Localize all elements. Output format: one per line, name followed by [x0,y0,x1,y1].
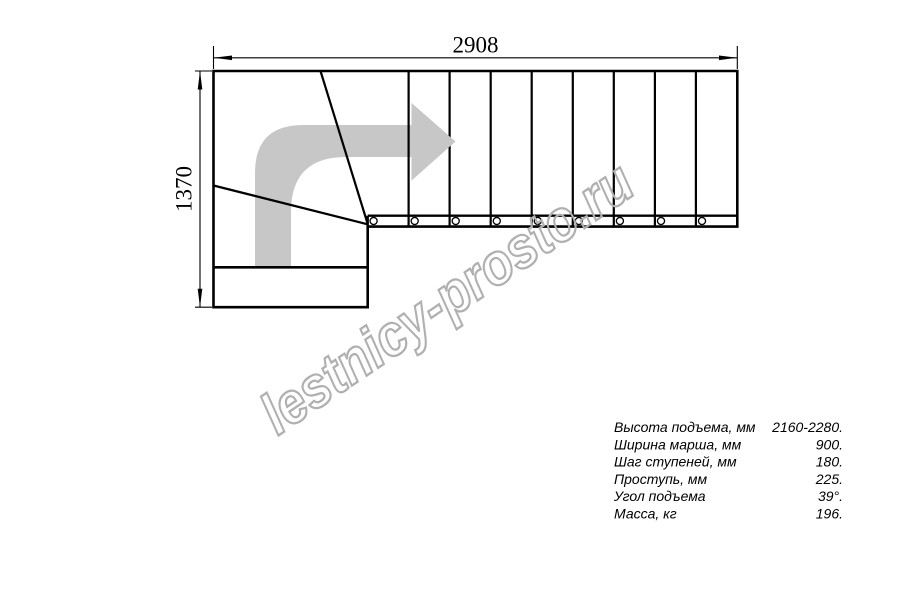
svg-text:39°.: 39°. [818,488,843,504]
svg-text:Масса, кг: Масса, кг [614,506,677,522]
svg-text:Угол подъема: Угол подъема [613,488,706,504]
svg-text:Ширина марша, мм: Ширина марша, мм [614,436,742,452]
svg-text:196.: 196. [816,506,843,522]
svg-text:1370: 1370 [172,166,197,212]
svg-text:2160-2280.: 2160-2280. [771,419,843,435]
svg-text:2908: 2908 [453,33,499,58]
svg-text:Высота подъема, мм: Высота подъема, мм [614,419,756,435]
svg-text:180.: 180. [816,454,843,470]
svg-text:Проступь, мм: Проступь, мм [614,471,708,487]
svg-text:900.: 900. [816,436,843,452]
svg-text:225.: 225. [815,471,843,487]
svg-text:Шаг ступеней, мм: Шаг ступеней, мм [614,454,737,470]
